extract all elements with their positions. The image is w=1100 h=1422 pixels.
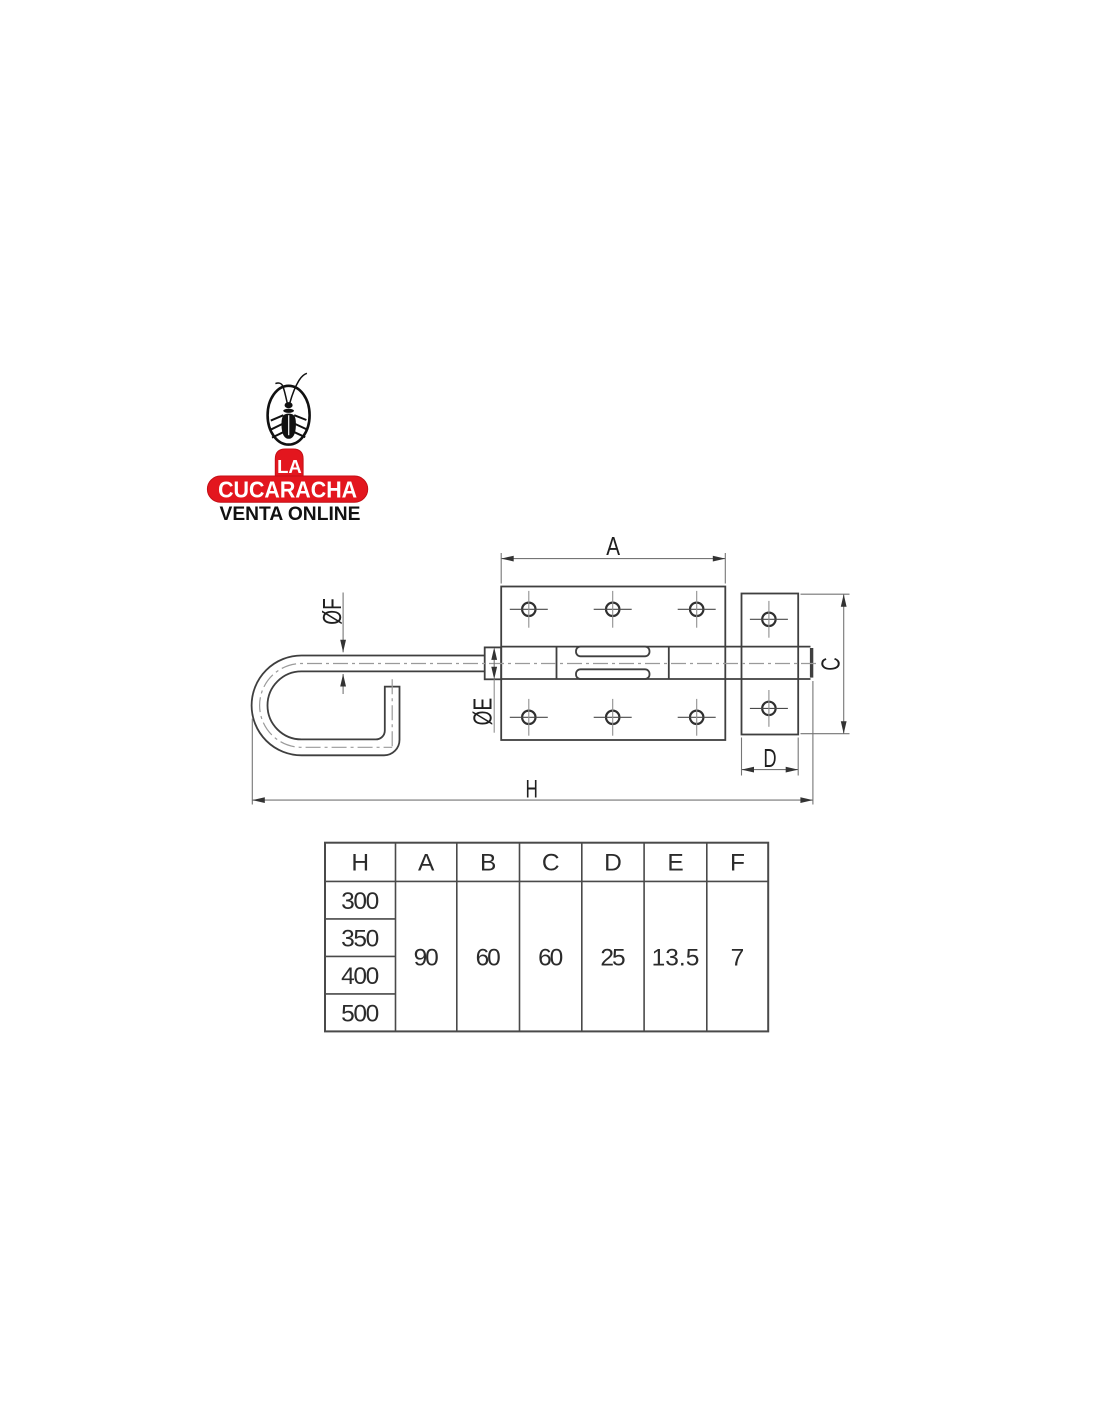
svg-text:C: C (816, 657, 846, 671)
svg-text:7: 7 (731, 944, 745, 971)
svg-text:13.5: 13.5 (652, 944, 700, 971)
svg-text:CUCARACHA: CUCARACHA (218, 476, 357, 502)
svg-text:C: C (542, 849, 560, 876)
svg-text:300: 300 (341, 888, 379, 915)
svg-text:60: 60 (476, 944, 501, 971)
svg-text:ØE: ØE (468, 698, 498, 726)
svg-text:60: 60 (538, 944, 563, 971)
svg-text:LA: LA (277, 456, 302, 477)
svg-text:H: H (351, 849, 369, 876)
svg-text:B: B (480, 849, 496, 876)
svg-text:F: F (730, 849, 745, 876)
svg-text:90: 90 (414, 944, 439, 971)
svg-text:D: D (604, 849, 622, 876)
svg-text:A: A (606, 533, 620, 561)
svg-text:A: A (418, 849, 435, 876)
svg-text:500: 500 (341, 1000, 379, 1027)
svg-text:VENTA ONLINE: VENTA ONLINE (220, 503, 361, 525)
svg-text:350: 350 (341, 925, 379, 952)
svg-text:ØF: ØF (317, 598, 347, 625)
svg-text:400: 400 (341, 963, 379, 990)
svg-text:D: D (763, 745, 776, 773)
svg-text:E: E (667, 849, 683, 876)
svg-text:H: H (526, 776, 538, 804)
svg-text:25: 25 (600, 944, 625, 971)
